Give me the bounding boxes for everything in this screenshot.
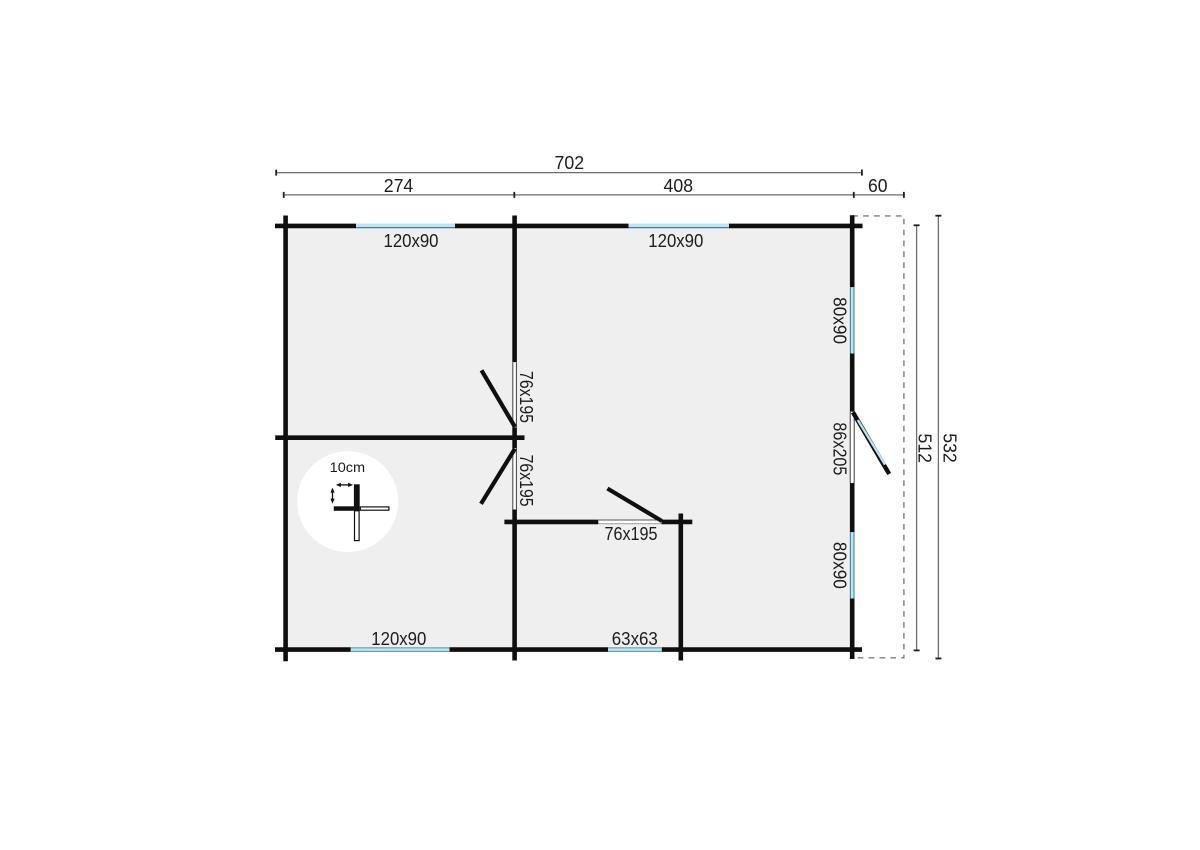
svg-text:63x63: 63x63 — [612, 629, 658, 649]
svg-text:532: 532 — [939, 433, 959, 463]
svg-text:76x195: 76x195 — [605, 524, 658, 544]
svg-text:76x195: 76x195 — [516, 371, 536, 423]
svg-text:408: 408 — [664, 176, 694, 196]
svg-text:76x195: 76x195 — [516, 455, 536, 507]
svg-text:120x90: 120x90 — [648, 231, 703, 251]
svg-text:274: 274 — [384, 176, 414, 196]
svg-text:60: 60 — [868, 176, 888, 196]
svg-text:80x90: 80x90 — [830, 297, 850, 344]
svg-text:10cm: 10cm — [330, 459, 366, 475]
svg-text:512: 512 — [915, 434, 935, 464]
svg-text:120x90: 120x90 — [371, 629, 426, 649]
svg-text:80x90: 80x90 — [830, 542, 850, 589]
svg-text:120x90: 120x90 — [384, 231, 439, 251]
svg-text:86x205: 86x205 — [830, 422, 850, 475]
svg-text:702: 702 — [555, 153, 585, 173]
